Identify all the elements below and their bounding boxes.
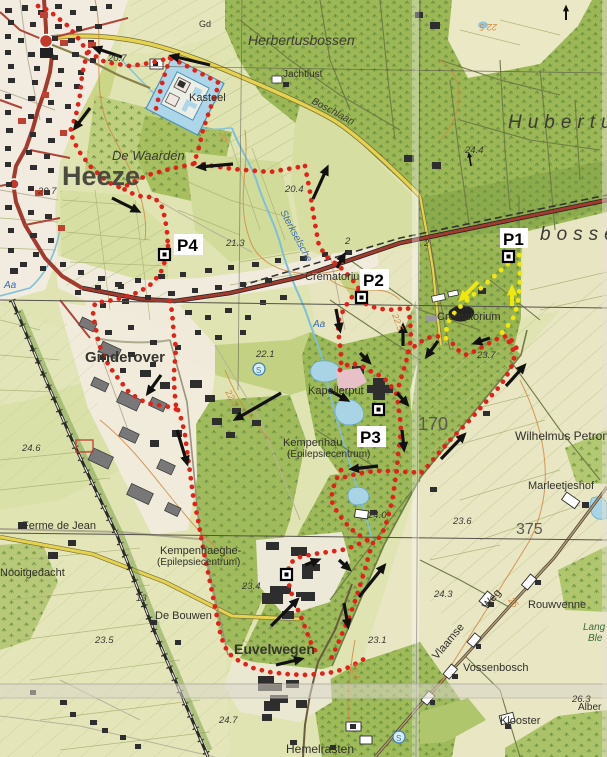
svg-text:Crematorium: Crematorium	[437, 311, 501, 323]
svg-text:Herbertusbossen: Herbertusbossen	[248, 32, 355, 48]
svg-text:P1: P1	[503, 230, 524, 249]
svg-text:23.6: 23.6	[452, 516, 472, 527]
svg-text:2: 2	[423, 238, 430, 249]
svg-text:Heeze: Heeze	[62, 161, 140, 191]
svg-text:Wilhelmus Petron: Wilhelmus Petron	[515, 429, 607, 443]
svg-text:20.4: 20.4	[284, 184, 304, 195]
svg-text:23.7: 23.7	[476, 350, 496, 361]
svg-text:Kempenhau: Kempenhau	[283, 437, 342, 449]
svg-text:Euvelwegen: Euvelwegen	[234, 641, 315, 657]
svg-text:De Waarden: De Waarden	[112, 148, 185, 163]
svg-text:Crematorium: Crematorium	[305, 271, 369, 283]
svg-text:P4: P4	[177, 236, 198, 255]
svg-text:P3: P3	[360, 428, 381, 447]
svg-text:Kasteel: Kasteel	[189, 92, 226, 104]
svg-text:Hemelrasten: Hemelrasten	[286, 742, 354, 756]
svg-text:S: S	[396, 734, 401, 743]
svg-text:23.5: 23.5	[94, 635, 114, 646]
svg-text:De Bouwen: De Bouwen	[155, 610, 212, 622]
svg-text:2: 2	[344, 236, 351, 247]
svg-text:23.4: 23.4	[241, 581, 261, 592]
svg-text:375: 375	[516, 521, 543, 538]
svg-text:Jachtlust: Jachtlust	[283, 69, 323, 80]
svg-text:bosse: bosse	[540, 224, 607, 245]
svg-text:23.1: 23.1	[367, 635, 387, 646]
svg-text:24.0: 24.0	[367, 510, 387, 521]
svg-text:Kapellerput: Kapellerput	[308, 385, 364, 397]
svg-text:Nooitgedacht: Nooitgedacht	[0, 567, 65, 579]
svg-text:21.3: 21.3	[225, 238, 245, 249]
svg-text:Lang: Lang	[583, 622, 606, 633]
svg-text:24.3: 24.3	[433, 589, 453, 600]
svg-text:S: S	[256, 366, 261, 375]
svg-text:Ble: Ble	[588, 633, 603, 644]
svg-text:24.4: 24.4	[464, 145, 484, 156]
svg-text:(Epilepsiecentrum): (Epilepsiecentrum)	[287, 449, 370, 460]
svg-text:Vossenbosch: Vossenbosch	[463, 662, 528, 674]
svg-text:(Epilepsiecentrum): (Epilepsiecentrum)	[157, 557, 240, 568]
svg-text:22.1: 22.1	[255, 349, 275, 360]
svg-text:Aa: Aa	[312, 319, 326, 330]
svg-text:Klooster: Klooster	[500, 715, 541, 727]
svg-text:22.5: 22.5	[478, 22, 498, 32]
svg-text:P2: P2	[363, 271, 384, 290]
svg-text:Marleetjeshof: Marleetjeshof	[528, 480, 595, 492]
svg-text:Rouwvenne: Rouwvenne	[528, 599, 586, 611]
svg-text:20.7: 20.7	[107, 53, 127, 64]
svg-text:26.3: 26.3	[571, 694, 591, 705]
svg-text:Gd: Gd	[199, 19, 211, 29]
svg-text:Aa: Aa	[3, 280, 17, 291]
svg-text:24.7: 24.7	[218, 715, 238, 726]
svg-text:24.6: 24.6	[21, 443, 41, 454]
svg-text:Ferme de Jean: Ferme de Jean	[22, 520, 96, 532]
svg-text:Ginderover: Ginderover	[85, 349, 165, 366]
svg-text:20.7: 20.7	[37, 186, 57, 197]
svg-text:170: 170	[418, 414, 448, 434]
svg-text:Kempenhaeghe-: Kempenhaeghe-	[160, 545, 242, 557]
svg-text:Hubertu: Hubertu	[508, 112, 607, 133]
svg-text:13: 13	[136, 593, 147, 604]
